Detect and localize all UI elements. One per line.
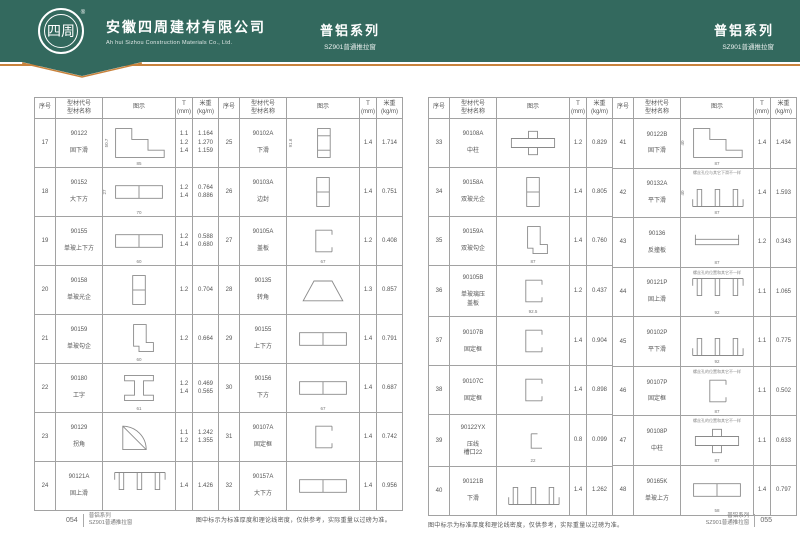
cell-meter-weight: 0.633 bbox=[771, 416, 797, 466]
cell-code-name: 90152 大下方 bbox=[56, 168, 103, 217]
table-row: 30 90156 下方 67 1.4 0.687 bbox=[219, 364, 403, 413]
profile-cross-section-diagram bbox=[294, 419, 352, 455]
cell-meter-weight: 1.434 bbox=[771, 119, 797, 169]
cell-thickness: 1.4 bbox=[360, 364, 377, 413]
cell-thickness: 1.2 bbox=[176, 266, 193, 315]
profile-code: 90180 bbox=[56, 375, 102, 383]
table-row: 25 90102A 下滑 91.6 1.4 1.714 bbox=[219, 119, 403, 168]
profile-code: 90121A bbox=[56, 473, 102, 481]
table-header-row: 序号 型材代号 型材名称 图示 T (mm) 米重 (kg/m) bbox=[219, 98, 403, 119]
cell-code-name: 90122YX 压线 槽口22 bbox=[450, 415, 497, 466]
cell-code-name: 90135 转角 bbox=[240, 266, 287, 315]
cell-thickness: 1.4 bbox=[570, 466, 587, 515]
cell-meter-weight: 0.687 bbox=[377, 364, 403, 413]
profile-code: 90108P bbox=[634, 428, 680, 436]
diagram-height-dim: 50.7 bbox=[104, 139, 109, 148]
diagram-width-dim: 60 bbox=[103, 357, 175, 362]
cell-serial-no: 29 bbox=[219, 315, 240, 364]
col-header-code-name: 型材代号 型材名称 bbox=[56, 98, 103, 119]
profile-name: 固下滑 bbox=[56, 147, 102, 155]
table-row: 39 90122YX 压线 槽口22 22 0.8 0.099 bbox=[429, 415, 613, 466]
cell-serial-no: 21 bbox=[35, 315, 56, 364]
diagram-note: 螺丝孔的位置和其它不一样 bbox=[682, 418, 752, 424]
col-header-code-name: 型材代号 型材名称 bbox=[634, 98, 681, 119]
diagram-width-dim: 70 bbox=[103, 210, 175, 215]
col-header-no: 序号 bbox=[429, 98, 450, 119]
cell-thickness: 1.4 bbox=[360, 119, 377, 168]
profile-cross-section-diagram bbox=[110, 468, 168, 504]
profile-cross-section-diagram bbox=[110, 223, 168, 259]
col-header-diagram: 图示 bbox=[103, 98, 176, 119]
cell-code-name: 90155 单玻上下方 bbox=[56, 217, 103, 266]
profile-cross-section-diagram bbox=[688, 373, 746, 409]
table-row: 23 90129 拐角 1.1 1.2 1.242 1.355 bbox=[35, 413, 219, 462]
cell-meter-weight: 0.857 bbox=[377, 266, 403, 315]
cell-serial-no: 43 bbox=[613, 218, 634, 268]
diagram-width-dim: 87 bbox=[681, 409, 753, 414]
cell-diagram: 螺丝孔位与其它下滑不一样 40 87 bbox=[681, 168, 754, 218]
profile-table-group: 序号 型材代号 型材名称 图示 T (mm) 米重 (kg/m) 25 9010… bbox=[218, 97, 403, 511]
cell-serial-no: 47 bbox=[613, 416, 634, 466]
cell-diagram: 螺丝孔的位置和其它不一样 92 bbox=[681, 267, 754, 317]
profile-code: 90135 bbox=[240, 277, 286, 285]
cell-diagram bbox=[287, 315, 360, 364]
header-band: 四周 ® 安徽四周建材有限公司 Ah hui Sizhou Constructi… bbox=[0, 0, 800, 62]
cell-code-name: 90102P 平下滑 bbox=[634, 317, 681, 367]
diagram-width-dim: 87 bbox=[497, 259, 569, 264]
profile-cross-section-diagram bbox=[504, 174, 562, 210]
profile-cross-section-diagram bbox=[688, 125, 746, 161]
profile-name: 工字 bbox=[56, 392, 102, 400]
cell-code-name: 90105A 盖板 bbox=[240, 217, 287, 266]
logo-text: 四周 bbox=[47, 23, 75, 39]
cell-thickness: 1.2 bbox=[360, 217, 377, 266]
profile-cross-section-diagram bbox=[294, 272, 352, 308]
profile-code: 90121B bbox=[450, 478, 496, 486]
cell-diagram: 58 bbox=[681, 466, 754, 516]
cell-thickness: 1.1 bbox=[754, 366, 771, 416]
cell-diagram bbox=[287, 462, 360, 511]
col-header-no: 序号 bbox=[35, 98, 56, 119]
cell-code-name: 90107C 固定框 bbox=[450, 366, 497, 415]
cell-serial-no: 42 bbox=[613, 168, 634, 218]
profile-cross-section-diagram bbox=[294, 174, 352, 210]
cell-thickness: 0.8 bbox=[570, 415, 587, 466]
page-number: 055 bbox=[760, 517, 772, 524]
series-title: 普铝系列 bbox=[654, 20, 774, 39]
diagram-height-dim: 40 bbox=[680, 190, 685, 195]
table-row: 35 90159A 双玻勾企 87 1.4 0.760 bbox=[429, 217, 613, 266]
profile-name: 固上滑 bbox=[56, 490, 102, 498]
cell-code-name: 90103A 边封 bbox=[240, 168, 287, 217]
cell-code-name: 90132A 平下滑 bbox=[634, 168, 681, 218]
cell-diagram: 61 bbox=[103, 364, 176, 413]
cell-thickness: 1.4 bbox=[360, 315, 377, 364]
profile-cross-section-diagram bbox=[110, 272, 168, 308]
profile-cross-section-diagram bbox=[294, 125, 352, 161]
cell-meter-weight: 1.426 bbox=[193, 462, 219, 511]
profile-code: 90132A bbox=[634, 180, 680, 188]
cell-thickness: 1.4 bbox=[570, 366, 587, 415]
cell-meter-weight: 0.797 bbox=[771, 466, 797, 516]
cell-thickness: 1.1 bbox=[754, 317, 771, 367]
profile-name: 单玻上下方 bbox=[56, 245, 102, 253]
registered-mark: ® bbox=[81, 9, 86, 16]
profile-cross-section-diagram bbox=[110, 321, 168, 357]
profile-table-group: 序号 型材代号 型材名称 图示 T (mm) 米重 (kg/m) 17 9012… bbox=[34, 97, 219, 511]
diagram-width-dim: 60 bbox=[103, 259, 175, 264]
profile-cross-section-diagram bbox=[294, 321, 352, 357]
cell-code-name: 90122 固下滑 bbox=[56, 119, 103, 168]
cell-serial-no: 23 bbox=[35, 413, 56, 462]
diagram-width-dim: 67 bbox=[287, 259, 359, 264]
cell-thickness: 1.2 1.4 bbox=[176, 217, 193, 266]
profile-name: 双玻光企 bbox=[450, 196, 496, 204]
cell-serial-no: 46 bbox=[613, 366, 634, 416]
profile-name: 反撞板 bbox=[634, 247, 680, 255]
col-header-thickness: T (mm) bbox=[754, 98, 771, 119]
cell-diagram bbox=[497, 317, 570, 366]
cell-thickness: 1.4 bbox=[360, 462, 377, 511]
profile-name: 大下方 bbox=[240, 490, 286, 498]
cell-code-name: 90121P 固上滑 bbox=[634, 267, 681, 317]
cell-diagram bbox=[103, 413, 176, 462]
cell-meter-weight: 0.775 bbox=[771, 317, 797, 367]
profile-code: 90122 bbox=[56, 130, 102, 138]
profile-cross-section-diagram bbox=[504, 223, 562, 259]
profile-cross-section-diagram bbox=[294, 468, 352, 504]
profile-code: 90165K bbox=[634, 478, 680, 486]
footer-divider bbox=[754, 514, 755, 527]
table-row: 28 90135 转角 1.3 0.857 bbox=[219, 266, 403, 315]
profile-code: 90159 bbox=[56, 326, 102, 334]
diagram-width-dim: 22 bbox=[497, 458, 569, 463]
profile-code: 90155 bbox=[56, 228, 102, 236]
diagram-height-dim: 91.6 bbox=[288, 139, 293, 148]
diagram-width-dim: 87 bbox=[681, 161, 753, 166]
profile-name: 固定框 bbox=[634, 395, 680, 403]
cell-meter-weight: 0.588 0.680 bbox=[193, 217, 219, 266]
cell-meter-weight: 0.956 bbox=[377, 462, 403, 511]
cell-serial-no: 17 bbox=[35, 119, 56, 168]
cell-serial-no: 19 bbox=[35, 217, 56, 266]
cell-diagram bbox=[497, 366, 570, 415]
series-title: 普铝系列 bbox=[295, 20, 405, 39]
diagram-height-dim: 27 bbox=[102, 189, 107, 194]
table-header-row: 序号 型材代号 型材名称 图示 T (mm) 米重 (kg/m) bbox=[613, 98, 797, 119]
table-row: 17 90122 固下滑 50.7 85 1.1 1.2 1.4 1.164 1… bbox=[35, 119, 219, 168]
cell-thickness: 1.2 bbox=[176, 315, 193, 364]
profile-code: 90107B bbox=[450, 329, 496, 337]
diagram-width-dim: 87 bbox=[681, 458, 753, 463]
cell-serial-no: 24 bbox=[35, 462, 56, 511]
col-header-weight: 米重 (kg/m) bbox=[377, 98, 403, 119]
table-row: 20 90158 单玻光企 1.2 0.704 bbox=[35, 266, 219, 315]
cell-serial-no: 27 bbox=[219, 217, 240, 266]
table-row: 47 90108P 中柱 螺丝孔的位置和其它不一样 87 1.1 0.633 bbox=[613, 416, 797, 466]
cell-meter-weight: 1.262 bbox=[587, 466, 613, 515]
profile-name: 平下滑 bbox=[634, 197, 680, 205]
cell-meter-weight: 0.829 bbox=[587, 119, 613, 168]
table-row: 34 90158A 双玻光企 1.4 0.805 bbox=[429, 168, 613, 217]
profile-cross-section-diagram bbox=[504, 473, 562, 509]
cell-code-name: 90107A 固定框 bbox=[240, 413, 287, 462]
cell-meter-weight: 1.593 bbox=[771, 168, 797, 218]
cell-serial-no: 20 bbox=[35, 266, 56, 315]
catalog-page-right: 序号 型材代号 型材名称 图示 T (mm) 米重 (kg/m) 33 9010… bbox=[428, 97, 785, 529]
cell-diagram bbox=[103, 462, 176, 511]
profile-cross-section-diagram bbox=[110, 370, 168, 406]
cell-diagram: 67 bbox=[287, 217, 360, 266]
cell-serial-no: 25 bbox=[219, 119, 240, 168]
cell-code-name: 90157A 大下方 bbox=[240, 462, 287, 511]
cell-thickness: 1.3 bbox=[360, 266, 377, 315]
profile-name: 固定框 bbox=[450, 395, 496, 403]
cell-code-name: 90121B 下滑 bbox=[450, 466, 497, 515]
profile-code: 90121P bbox=[634, 279, 680, 287]
profile-cross-section-diagram bbox=[504, 125, 562, 161]
col-header-code-name: 型材代号 型材名称 bbox=[240, 98, 287, 119]
diagram-width-dim: 85 bbox=[103, 161, 175, 166]
profile-code: 90105A bbox=[240, 228, 286, 236]
profile-name: 压线 槽口22 bbox=[450, 441, 496, 458]
table-row: 40 90121B 下滑 1.4 1.262 bbox=[429, 466, 613, 515]
profile-code: 90156 bbox=[240, 375, 286, 383]
cell-serial-no: 38 bbox=[429, 366, 450, 415]
table-row: 43 90136 反撞板 87 1.2 0.343 bbox=[613, 218, 797, 268]
cell-thickness: 1.4 bbox=[754, 466, 771, 516]
cell-serial-no: 31 bbox=[219, 413, 240, 462]
cell-serial-no: 48 bbox=[613, 466, 634, 516]
profile-code: 90105B bbox=[450, 274, 496, 282]
profile-code: 90136 bbox=[634, 230, 680, 238]
cell-code-name: 90155 上下方 bbox=[240, 315, 287, 364]
profile-name: 平下滑 bbox=[634, 346, 680, 354]
table-row: 41 90122B 固下滑 40 87 1.4 1.434 bbox=[613, 119, 797, 169]
cell-serial-no: 35 bbox=[429, 217, 450, 266]
diagram-width-dim: 67 bbox=[287, 406, 359, 411]
table-row: 27 90105A 盖板 67 1.2 0.408 bbox=[219, 217, 403, 266]
col-header-weight: 米重 (kg/m) bbox=[193, 98, 219, 119]
col-header-weight: 米重 (kg/m) bbox=[771, 98, 797, 119]
profile-table-group: 序号 型材代号 型材名称 图示 T (mm) 米重 (kg/m) 33 9010… bbox=[428, 97, 613, 516]
page-footer-right: 普铝系列 SZ901普通推拉窗 055 bbox=[706, 513, 772, 527]
cell-thickness: 1.2 bbox=[570, 119, 587, 168]
cell-serial-no: 18 bbox=[35, 168, 56, 217]
profile-name: 上下方 bbox=[240, 343, 286, 351]
cell-meter-weight: 0.704 bbox=[193, 266, 219, 315]
col-header-thickness: T (mm) bbox=[176, 98, 193, 119]
profile-code: 90107C bbox=[450, 378, 496, 386]
cell-serial-no: 41 bbox=[613, 119, 634, 169]
cell-thickness: 1.4 bbox=[570, 168, 587, 217]
cell-meter-weight: 1.242 1.355 bbox=[193, 413, 219, 462]
profile-cross-section-diagram bbox=[110, 419, 168, 455]
cell-diagram bbox=[287, 266, 360, 315]
table-row: 21 90159 单玻勾企 60 1.2 0.664 bbox=[35, 315, 219, 364]
profile-cross-section-diagram bbox=[688, 175, 746, 211]
profile-name: 单玻璃压 盖板 bbox=[450, 291, 496, 308]
cell-thickness: 1.2 bbox=[570, 266, 587, 317]
profile-name: 盖板 bbox=[240, 245, 286, 253]
profile-code: 90108A bbox=[450, 130, 496, 138]
table-row: 24 90121A 固上滑 1.4 1.426 bbox=[35, 462, 219, 511]
cell-meter-weight: 0.898 bbox=[587, 366, 613, 415]
profile-name: 单玻上方 bbox=[634, 495, 680, 503]
diagram-width-dim: 87 bbox=[681, 260, 753, 265]
cell-diagram: 67 bbox=[287, 364, 360, 413]
cell-diagram bbox=[287, 413, 360, 462]
profile-code: 90107A bbox=[240, 424, 286, 432]
table-row: 22 90180 工字 61 1.2 1.4 0.469 0.565 bbox=[35, 364, 219, 413]
cell-meter-weight: 0.502 bbox=[771, 366, 797, 416]
footer-series-title: 普铝系列 bbox=[727, 513, 749, 519]
cell-thickness: 1.4 bbox=[754, 168, 771, 218]
profile-name: 大下方 bbox=[56, 196, 102, 204]
cell-code-name: 90108P 中柱 bbox=[634, 416, 681, 466]
profile-code: 90157A bbox=[240, 473, 286, 481]
profile-cross-section-diagram bbox=[688, 224, 746, 260]
cell-code-name: 90180 工字 bbox=[56, 364, 103, 413]
cell-diagram: 50.7 85 bbox=[103, 119, 176, 168]
diagram-width-dim: 92.5 bbox=[497, 309, 569, 314]
profile-name: 固上滑 bbox=[634, 296, 680, 304]
cell-diagram: 87 bbox=[681, 218, 754, 268]
diagram-height-dim: 40 bbox=[680, 141, 685, 146]
company-name-en: Ah hui Sizhou Construction Materials Co.… bbox=[106, 40, 266, 46]
cell-diagram: 91.6 bbox=[287, 119, 360, 168]
profile-cross-section-diagram bbox=[294, 370, 352, 406]
table-row: 32 90157A 大下方 1.4 0.956 bbox=[219, 462, 403, 511]
profile-table-left: 序号 型材代号 型材名称 图示 T (mm) 米重 (kg/m) 17 9012… bbox=[34, 97, 391, 511]
profile-name: 中柱 bbox=[450, 147, 496, 155]
table-row: 45 90102P 平下滑 92 1.1 0.775 bbox=[613, 317, 797, 367]
cell-serial-no: 37 bbox=[429, 317, 450, 366]
profile-name: 中柱 bbox=[634, 445, 680, 453]
cell-serial-no: 26 bbox=[219, 168, 240, 217]
cell-meter-weight: 1.164 1.270 1.159 bbox=[193, 119, 219, 168]
profile-cross-section-diagram bbox=[504, 423, 562, 459]
cell-thickness: 1.2 bbox=[754, 218, 771, 268]
series-subtitle: SZ901普通推拉窗 bbox=[654, 41, 774, 51]
profile-cross-section-diagram bbox=[504, 273, 562, 309]
profile-name: 转角 bbox=[240, 294, 286, 302]
cell-serial-no: 32 bbox=[219, 462, 240, 511]
cell-diagram: 92.5 bbox=[497, 266, 570, 317]
col-header-diagram: 图示 bbox=[497, 98, 570, 119]
table-row: 48 90165K 单玻上方 58 1.4 0.797 bbox=[613, 466, 797, 516]
cell-meter-weight: 0.343 bbox=[771, 218, 797, 268]
cell-code-name: 90108A 中柱 bbox=[450, 119, 497, 168]
cell-thickness: 1.4 bbox=[360, 168, 377, 217]
cell-meter-weight: 1.065 bbox=[771, 267, 797, 317]
cell-diagram bbox=[497, 168, 570, 217]
profile-name: 下滑 bbox=[240, 147, 286, 155]
profile-code: 90158 bbox=[56, 277, 102, 285]
cell-meter-weight: 0.408 bbox=[377, 217, 403, 266]
cell-meter-weight: 0.099 bbox=[587, 415, 613, 466]
cell-code-name: 90136 反撞板 bbox=[634, 218, 681, 268]
cell-code-name: 90122B 固下滑 bbox=[634, 119, 681, 169]
col-header-code-name: 型材代号 型材名称 bbox=[450, 98, 497, 119]
cell-serial-no: 44 bbox=[613, 267, 634, 317]
series-title-right: 普铝系列 SZ901普通推拉窗 bbox=[654, 20, 774, 51]
cell-code-name: 90159A 双玻勾企 bbox=[450, 217, 497, 266]
cell-diagram: 螺丝孔的位置和其它不一样 87 bbox=[681, 416, 754, 466]
cell-serial-no: 39 bbox=[429, 415, 450, 466]
cell-serial-no: 33 bbox=[429, 119, 450, 168]
table-row: 37 90107B 固定框 1.4 0.904 bbox=[429, 317, 613, 366]
cell-serial-no: 45 bbox=[613, 317, 634, 367]
profile-name: 边封 bbox=[240, 196, 286, 204]
diagram-width-dim: 61 bbox=[103, 406, 175, 411]
cell-diagram bbox=[103, 266, 176, 315]
cell-meter-weight: 0.664 bbox=[193, 315, 219, 364]
cell-diagram: 螺丝孔的位置和其它不一样 87 bbox=[681, 366, 754, 416]
footer-series-title: 普铝系列 bbox=[89, 513, 111, 519]
diagram-note: 螺丝孔的位置和其它不一样 bbox=[682, 270, 752, 276]
cell-diagram: 22 bbox=[497, 415, 570, 466]
table-row: 36 90105B 单玻璃压 盖板 92.5 1.2 0.437 bbox=[429, 266, 613, 317]
cell-serial-no: 22 bbox=[35, 364, 56, 413]
cell-meter-weight: 0.764 0.886 bbox=[193, 168, 219, 217]
table-header-row: 序号 型材代号 型材名称 图示 T (mm) 米重 (kg/m) bbox=[35, 98, 219, 119]
cell-code-name: 90129 拐角 bbox=[56, 413, 103, 462]
cell-diagram: 60 bbox=[103, 315, 176, 364]
cell-code-name: 90102A 下滑 bbox=[240, 119, 287, 168]
diagram-note: 螺丝孔的位置和其它不一样 bbox=[682, 369, 752, 375]
table-row: 38 90107C 固定框 1.4 0.898 bbox=[429, 366, 613, 415]
cell-code-name: 90105B 单玻璃压 盖板 bbox=[450, 266, 497, 317]
profile-table-right: 序号 型材代号 型材名称 图示 T (mm) 米重 (kg/m) 33 9010… bbox=[428, 97, 785, 516]
cell-meter-weight: 1.714 bbox=[377, 119, 403, 168]
profile-cross-section-diagram bbox=[688, 324, 746, 360]
cell-meter-weight: 0.742 bbox=[377, 413, 403, 462]
footer-series-sub: SZ901普通推拉窗 bbox=[89, 520, 133, 526]
profile-code: 90159A bbox=[450, 228, 496, 236]
cell-thickness: 1.4 bbox=[570, 217, 587, 266]
profile-code: 90103A bbox=[240, 179, 286, 187]
cell-diagram: 27 70 bbox=[103, 168, 176, 217]
diagram-width-dim: 92 bbox=[681, 359, 753, 364]
col-header-thickness: T (mm) bbox=[570, 98, 587, 119]
cell-thickness: 1.4 bbox=[360, 413, 377, 462]
table-row: 33 90108A 中柱 1.2 0.829 bbox=[429, 119, 613, 168]
profile-name: 单玻勾企 bbox=[56, 343, 102, 351]
cell-diagram: 60 bbox=[103, 217, 176, 266]
cell-diagram bbox=[497, 119, 570, 168]
table-row: 44 90121P 固上滑 螺丝孔的位置和其它不一样 92 1.1 1.065 bbox=[613, 267, 797, 317]
cell-thickness: 1.4 bbox=[754, 119, 771, 169]
diagram-width-dim: 92 bbox=[681, 310, 753, 315]
profile-code: 90122YX bbox=[450, 424, 496, 432]
profile-cross-section-diagram bbox=[294, 223, 352, 259]
cell-meter-weight: 0.760 bbox=[587, 217, 613, 266]
profile-cross-section-diagram bbox=[688, 423, 746, 459]
company-logo-icon: 四周 ® bbox=[36, 5, 88, 57]
table-row: 42 90132A 平下滑 螺丝孔位与其它下滑不一样 40 87 1.4 1.5… bbox=[613, 168, 797, 218]
footer-series: 普铝系列 SZ901普通推拉窗 bbox=[89, 513, 133, 527]
cell-diagram: 40 87 bbox=[681, 119, 754, 169]
cell-code-name: 90107P 固定框 bbox=[634, 366, 681, 416]
profile-name: 下滑 bbox=[450, 495, 496, 503]
profile-name: 双玻勾企 bbox=[450, 245, 496, 253]
cell-code-name: 90107B 固定框 bbox=[450, 317, 497, 366]
table-row: 26 90103A 边封 1.4 0.751 bbox=[219, 168, 403, 217]
cell-code-name: 90158 单玻光企 bbox=[56, 266, 103, 315]
cell-thickness: 1.2 1.4 bbox=[176, 168, 193, 217]
cell-thickness: 1.1 bbox=[754, 416, 771, 466]
